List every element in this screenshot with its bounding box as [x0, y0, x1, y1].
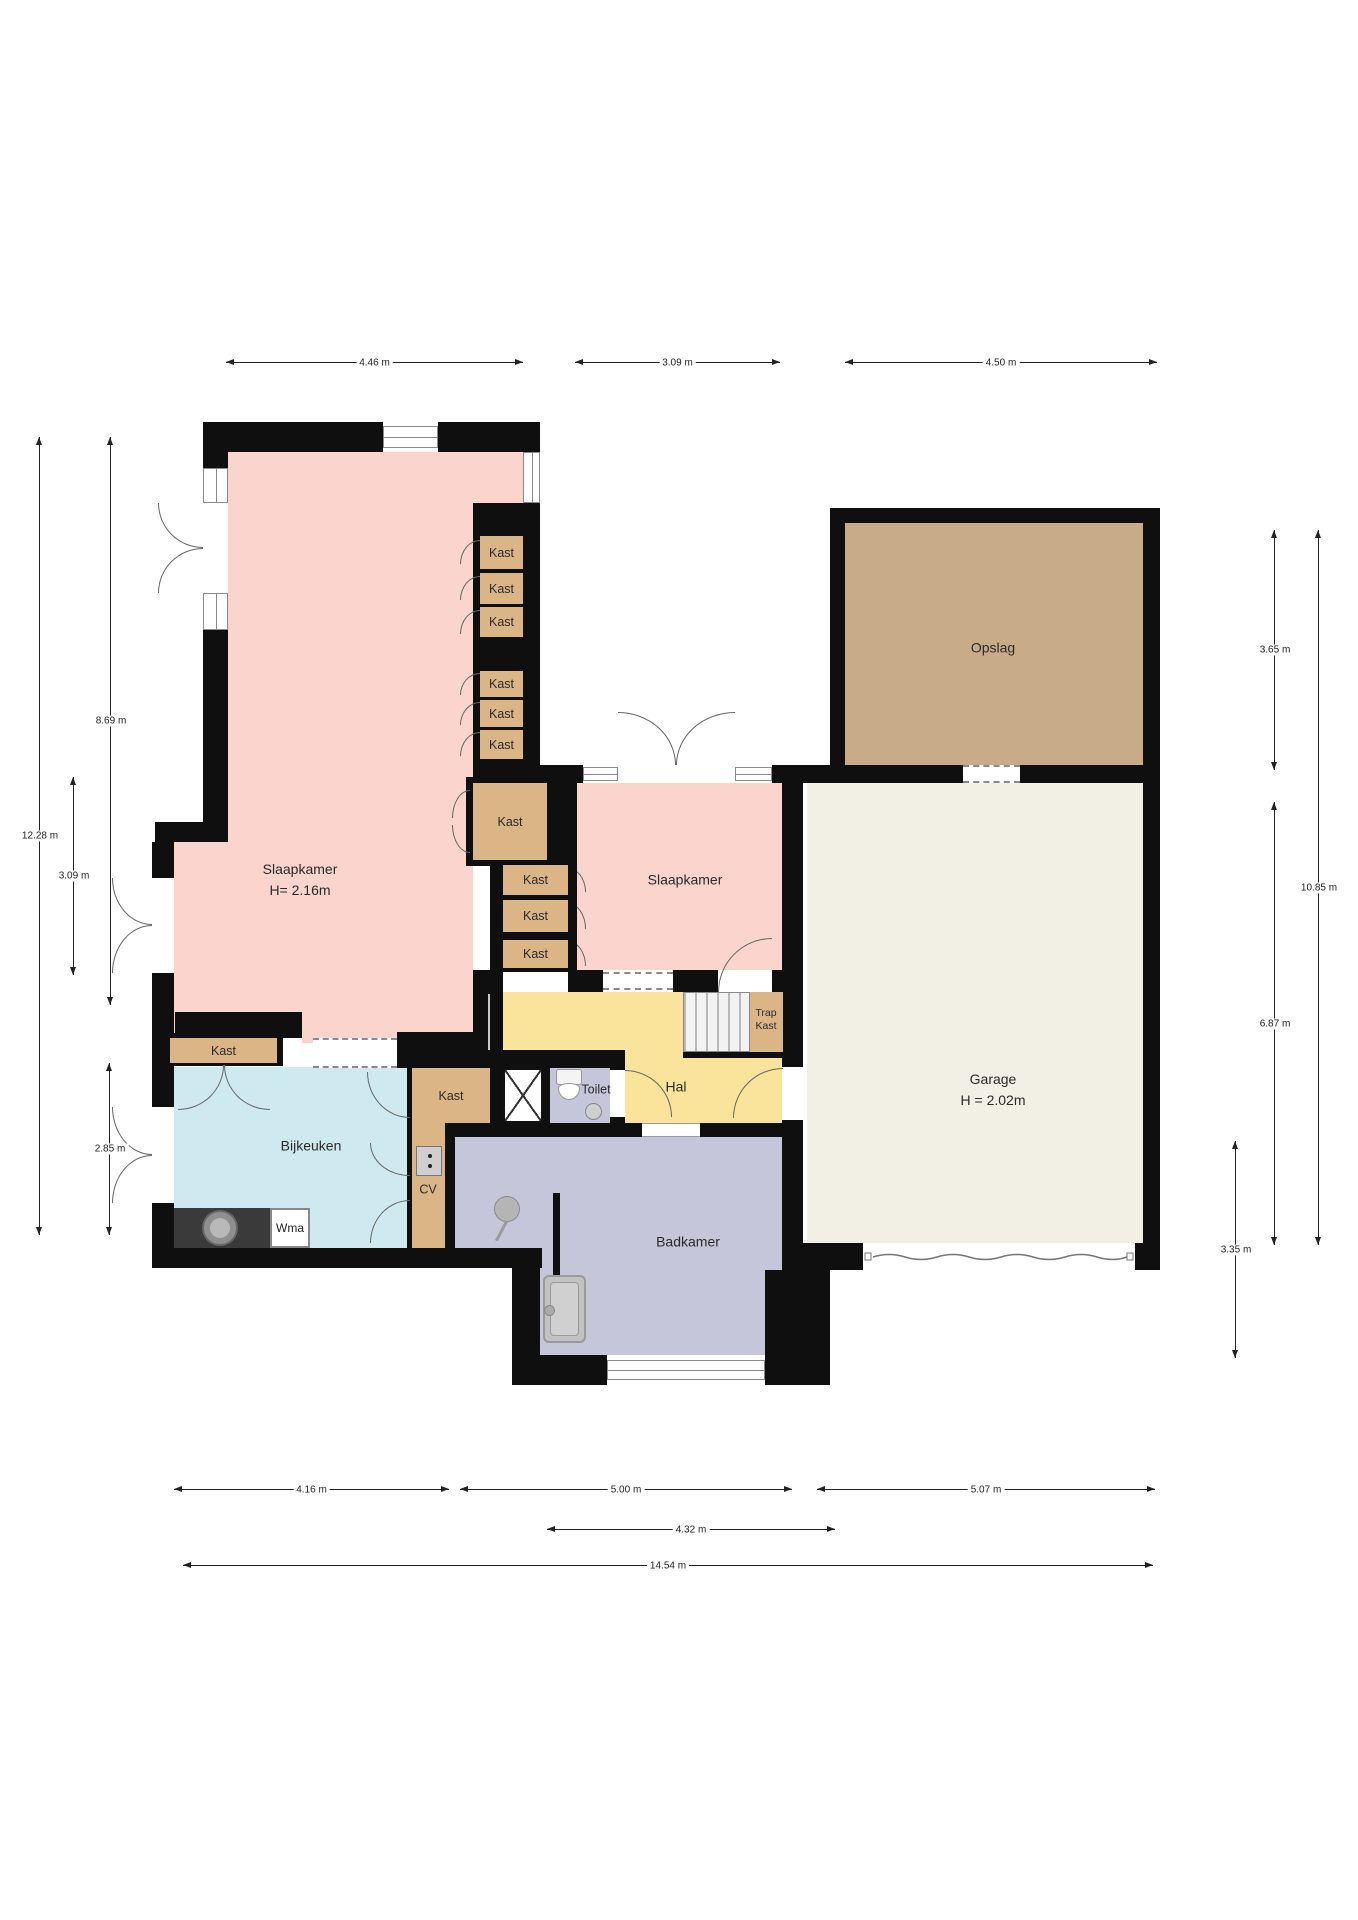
room-name: Bijkeuken	[281, 1136, 342, 1157]
room-label-toilet: Toilet	[581, 1081, 610, 1100]
dimension-line: 8.69 m	[110, 437, 111, 1005]
sink-icon	[202, 1210, 238, 1246]
closet-label: Kast	[523, 909, 548, 923]
trap-kast-label: Trap Kast	[755, 1007, 776, 1033]
closet-label: Kast	[489, 707, 514, 721]
closet-kast: Kast	[480, 700, 523, 727]
wall	[203, 422, 383, 452]
garage-door	[863, 1245, 1135, 1268]
wall	[203, 630, 228, 822]
cv-boiler	[416, 1146, 442, 1176]
room-slaapkamer-main	[174, 842, 228, 1038]
closet-kast: Kast	[412, 1068, 490, 1123]
closet-label: Kast	[489, 615, 514, 629]
dimension-line: 12.28 m	[39, 437, 40, 1235]
floor-plan: Kast Kast Kast Kast Kast Kast Kast Kast …	[0, 0, 1358, 1920]
room-name: Hal	[665, 1077, 686, 1098]
room-height: H = 2.02m	[961, 1090, 1026, 1111]
window	[607, 1360, 765, 1380]
closet-kast: Kast	[170, 1038, 277, 1063]
wall	[765, 1355, 830, 1385]
room-label-slaapkamer-main: Slaapkamer H= 2.16m	[263, 859, 338, 901]
bathtub-icon	[543, 1275, 586, 1343]
wall	[568, 970, 603, 992]
dimension-line: 3.65 m	[1274, 530, 1275, 770]
wall	[782, 1243, 863, 1270]
dimension-line: 4.32 m	[547, 1529, 835, 1530]
wall	[1143, 508, 1160, 1270]
room-name: CV	[419, 1181, 436, 1200]
room-name: Garage	[961, 1069, 1026, 1090]
door-opening	[152, 878, 174, 973]
room-name: Slaapkamer	[648, 870, 723, 891]
dimension-label: 3.09 m	[56, 871, 93, 882]
wall	[512, 1355, 607, 1385]
dimension-label: 10.85 m	[1298, 882, 1340, 893]
dimension-label: 2.85 m	[92, 1144, 129, 1155]
dimension-label: 3.65 m	[1257, 645, 1294, 656]
passage-opening	[313, 1038, 397, 1068]
wall	[830, 765, 963, 783]
dimension-line: 2.85 m	[109, 1063, 110, 1235]
room-garage	[807, 783, 1143, 1243]
window	[735, 767, 772, 781]
dimension-label: 4.46 m	[356, 358, 393, 369]
wall	[568, 765, 577, 970]
wall	[203, 452, 228, 468]
room-name: Toilet	[581, 1081, 610, 1100]
dimension-line: 5.07 m	[817, 1489, 1155, 1490]
wall	[473, 503, 540, 530]
wall	[1135, 1243, 1160, 1270]
dimension-label: 3.09 m	[659, 358, 696, 369]
dimension-label: 4.16 m	[293, 1485, 330, 1496]
wall	[782, 783, 803, 1067]
door-opening	[610, 1070, 625, 1117]
door-arc	[676, 712, 735, 765]
door-opening	[642, 1123, 700, 1137]
wall	[1020, 765, 1160, 783]
dimension-line: 4.50 m	[845, 362, 1157, 363]
wall	[540, 765, 583, 783]
dimension-label: 4.32 m	[673, 1525, 710, 1536]
door-arc	[158, 503, 203, 548]
room-name: Badkamer	[656, 1232, 720, 1253]
window	[523, 452, 540, 503]
closet-kast: Kast	[480, 730, 523, 759]
dimension-line: 3.09 m	[73, 777, 74, 975]
closet-label: Kast	[438, 1089, 463, 1103]
dimension-line: 4.16 m	[174, 1489, 449, 1490]
dimension-label: 8.69 m	[93, 716, 130, 727]
dimension-label: 14.54 m	[647, 1561, 689, 1572]
dimension-line: 3.35 m	[1235, 1141, 1236, 1358]
closet-label: Kast	[523, 873, 548, 887]
partition-line	[488, 994, 490, 1050]
washing-machine: Wma	[270, 1208, 310, 1248]
dimension-label: 5.07 m	[968, 1485, 1005, 1496]
room-badkamer	[540, 1250, 782, 1270]
room-label-opslag: Opslag	[971, 638, 1015, 659]
door-opening	[782, 1067, 803, 1120]
door-opening	[152, 1107, 174, 1203]
dimension-line: 3.09 m	[575, 362, 780, 363]
wall	[830, 508, 1160, 523]
window	[583, 767, 618, 781]
dimension-line: 10.85 m	[1318, 530, 1319, 1245]
closet-kast: Kast	[473, 783, 547, 860]
dimension-line: 14.54 m	[183, 1565, 1153, 1566]
door-arc	[112, 1155, 152, 1203]
window	[203, 593, 228, 630]
room-label-slaapkamer-2: Slaapkamer	[648, 870, 723, 891]
dimension-line: 5.00 m	[460, 1489, 792, 1490]
room-badkamer	[455, 1137, 783, 1250]
wall	[438, 422, 540, 452]
closet-kast: Kast	[480, 573, 523, 604]
room-name: Opslag	[971, 638, 1015, 659]
room-height: H= 2.16m	[263, 880, 338, 901]
closet-kast: Kast	[480, 536, 523, 569]
closet-kast: Kast	[503, 900, 568, 932]
room-label-badkamer: Badkamer	[656, 1232, 720, 1253]
door-arc	[158, 548, 203, 593]
closet-label: Kast	[489, 677, 514, 691]
door-opening	[203, 503, 228, 593]
garage-door-icon	[863, 1245, 1135, 1268]
dimension-line: 4.46 m	[226, 362, 523, 363]
wall	[782, 1120, 803, 1250]
wma-label: Wma	[276, 1221, 304, 1235]
passage-opening	[963, 765, 1020, 783]
trap-kast-line2: Kast	[755, 1020, 776, 1033]
closet-label: Kast	[489, 738, 514, 752]
dimension-label: 6.87 m	[1257, 1018, 1294, 1029]
wall: Kast Kast Kast	[490, 860, 568, 972]
room-label-bijkeuken: Bijkeuken	[281, 1136, 342, 1157]
room-label-garage: Garage H = 2.02m	[961, 1069, 1026, 1111]
wall	[700, 1123, 783, 1137]
wall	[673, 970, 718, 992]
dimension-label: 5.00 m	[608, 1485, 645, 1496]
trap-kast-line1: Trap	[755, 1007, 776, 1020]
wall	[683, 1052, 783, 1058]
wall	[155, 822, 228, 842]
sink-icon	[585, 1103, 602, 1120]
closet-kast: Kast	[503, 865, 568, 895]
closet-kast: Kast	[503, 940, 568, 968]
shower-icon	[494, 1196, 520, 1222]
room-name: Slaapkamer	[263, 859, 338, 880]
wall	[455, 1123, 642, 1137]
closet-kast: Kast	[480, 607, 523, 637]
window	[203, 468, 228, 503]
closet-label: Kast	[489, 582, 514, 596]
closet-label: Kast	[211, 1044, 236, 1058]
passage-opening	[603, 972, 673, 990]
dimension-label: 4.50 m	[983, 358, 1020, 369]
closet-kast: Kast	[480, 671, 523, 697]
stairs	[683, 992, 750, 1052]
dimension-label: 12.28 m	[19, 831, 61, 842]
room-slaapkamer-main	[228, 536, 473, 1012]
door-arc	[618, 712, 676, 765]
dimension-label: 3.35 m	[1218, 1244, 1255, 1255]
door-arc	[112, 925, 152, 973]
wall: Kast	[466, 777, 568, 866]
dimension-line: 6.87 m	[1274, 802, 1275, 1245]
closet-label: Kast	[489, 546, 514, 560]
room-label-hal: Hal	[665, 1077, 686, 1098]
wall	[152, 842, 174, 878]
wall: Kast Kast Kast Kast Kast Kast	[473, 530, 540, 783]
shaft-icon	[503, 1068, 543, 1123]
window	[383, 426, 438, 448]
wall	[830, 523, 845, 765]
closet-label: Kast	[497, 815, 522, 829]
room-label-cv: CV	[419, 1181, 436, 1200]
door-arc	[112, 878, 152, 925]
closet-label: Kast	[523, 947, 548, 961]
wall	[152, 1248, 542, 1268]
wall	[765, 1270, 830, 1355]
